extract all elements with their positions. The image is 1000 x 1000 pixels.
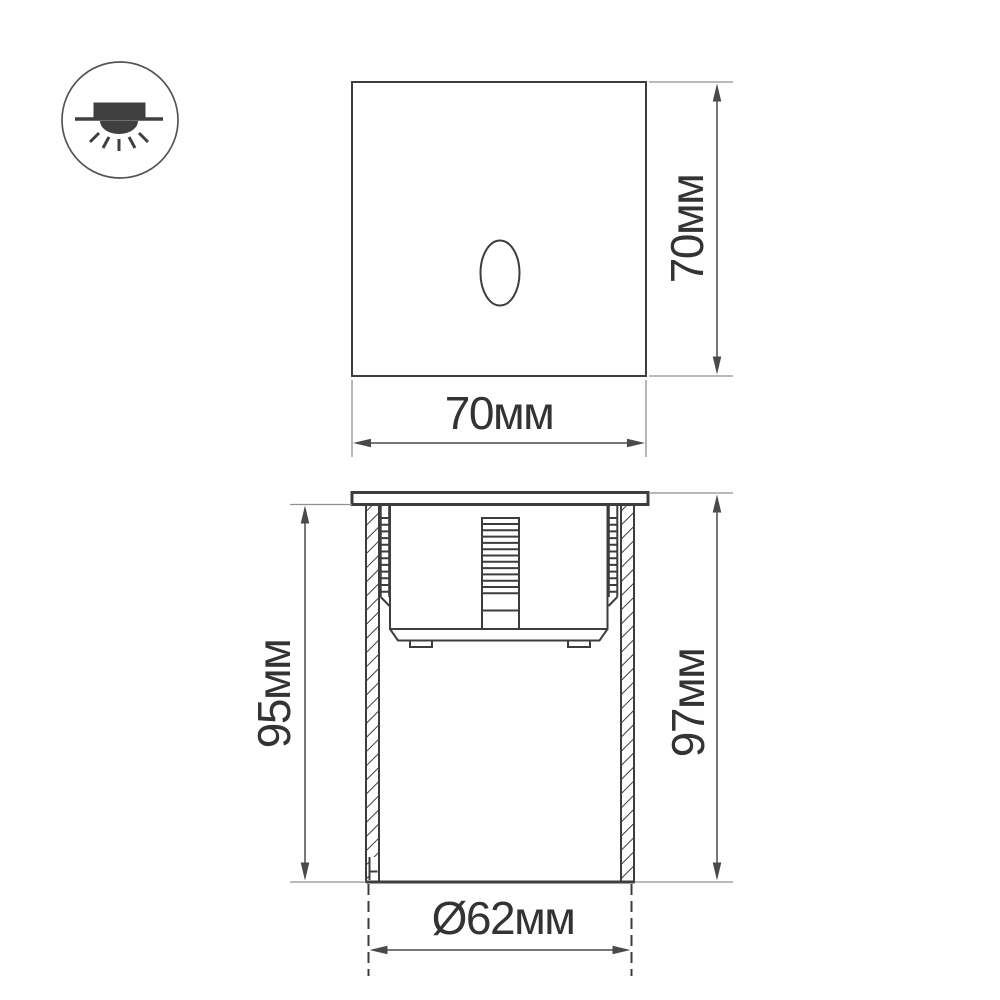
arrow-up xyxy=(713,495,722,513)
front-width-label: 70мм xyxy=(445,387,553,439)
arrow-down xyxy=(301,863,310,881)
sleeve-wall-right xyxy=(621,505,634,883)
icon-lamp-dome xyxy=(100,121,138,134)
front-face xyxy=(352,82,646,376)
body-skirt xyxy=(390,629,608,641)
dim-front-width: 70мм xyxy=(352,380,646,457)
drawing-canvas: 70мм 70мм xyxy=(0,0,1000,1000)
arrow-right xyxy=(627,439,645,448)
arrow-right xyxy=(613,946,631,955)
arrow-up xyxy=(713,84,722,102)
spring-strip-right xyxy=(609,506,618,606)
dim-front-height: 70мм xyxy=(649,82,733,376)
arrow-down xyxy=(713,863,722,881)
flange xyxy=(352,493,648,505)
spring-strip-left xyxy=(381,506,390,606)
front-view xyxy=(352,82,646,376)
dimension-drawing: 70мм 70мм xyxy=(0,0,1000,1000)
dim-overall-height: 97мм xyxy=(650,493,733,881)
icon-housing-box xyxy=(94,103,146,119)
sleeve-wall-left xyxy=(366,505,379,883)
arrow-up xyxy=(301,506,310,524)
arrow-down xyxy=(713,357,722,375)
icon-light-rays xyxy=(90,133,148,151)
dim-cutout-diameter: Ø62мм xyxy=(369,884,632,976)
recessed-downlight-icon xyxy=(62,62,178,178)
arrow-left xyxy=(370,946,388,955)
dim-recess-depth: 95мм xyxy=(248,505,352,881)
body-foot-right xyxy=(568,641,590,648)
arrow-left xyxy=(353,439,371,448)
recess-depth-label: 95мм xyxy=(248,640,300,748)
cutout-diameter-label: Ø62мм xyxy=(432,892,575,944)
center-column xyxy=(482,518,519,629)
light-aperture xyxy=(481,241,520,306)
overall-height-label: 97мм xyxy=(662,649,714,757)
body-foot-left xyxy=(410,641,432,648)
front-height-label: 70мм xyxy=(661,175,713,283)
